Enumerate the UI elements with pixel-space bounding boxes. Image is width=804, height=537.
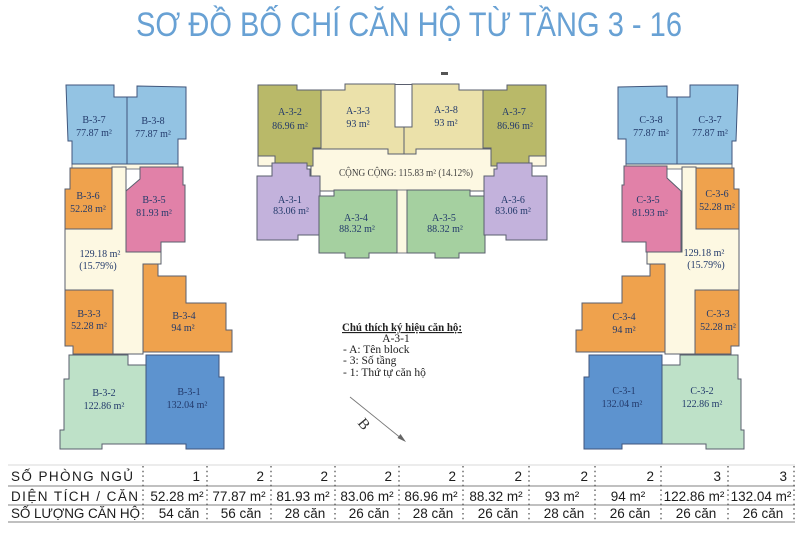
svg-text:83.06 m²: 83.06 m²: [340, 489, 394, 504]
svg-text:A-3-7: A-3-7: [502, 107, 526, 118]
svg-text:A-3-4: A-3-4: [344, 213, 368, 224]
svg-text:132.04 m²: 132.04 m²: [167, 400, 208, 411]
svg-text:81.93 m²: 81.93 m²: [632, 208, 668, 219]
svg-text:2: 2: [384, 469, 392, 484]
svg-text:CỘNG CỘNG: 115.83 m² (14.12%): CỘNG CỘNG: 115.83 m² (14.12%): [339, 167, 473, 179]
svg-text:77.87 m²: 77.87 m²: [135, 129, 171, 140]
svg-text:77.87 m²: 77.87 m²: [76, 128, 112, 139]
svg-text:B-3-8: B-3-8: [141, 116, 164, 127]
svg-text:2: 2: [580, 469, 588, 484]
svg-text:52.28 m²: 52.28 m²: [71, 321, 107, 332]
svg-text:A-3-8: A-3-8: [434, 105, 458, 116]
svg-text:B-3-3: B-3-3: [77, 309, 100, 320]
svg-text:28 căn: 28 căn: [413, 506, 454, 521]
svg-text:94 m²: 94 m²: [612, 325, 635, 336]
svg-text:2: 2: [448, 469, 456, 484]
svg-text:C-3-7: C-3-7: [698, 115, 721, 126]
svg-text:C-3-4: C-3-4: [612, 312, 635, 323]
svg-text:A-3-3: A-3-3: [346, 106, 370, 117]
svg-text:86.96 m²: 86.96 m²: [272, 121, 308, 132]
svg-text:81.93 m²: 81.93 m²: [136, 208, 172, 219]
svg-text:26 căn: 26 căn: [349, 506, 390, 521]
svg-text:54 căn: 54 căn: [159, 506, 200, 521]
svg-text:C-3-2: C-3-2: [690, 386, 713, 397]
svg-text:C-3-3: C-3-3: [706, 309, 729, 320]
svg-text:SỐ LƯỢNG CĂN HỘ: SỐ LƯỢNG CĂN HỘ: [11, 506, 140, 521]
svg-text:3: 3: [713, 469, 721, 484]
svg-text:26 căn: 26 căn: [743, 506, 784, 521]
svg-text:- 1: Thứ tự căn hộ: - 1: Thứ tự căn hộ: [343, 367, 426, 379]
svg-text:1: 1: [192, 469, 200, 484]
svg-text:52.28 m²: 52.28 m²: [699, 202, 735, 213]
svg-text:56 căn: 56 căn: [221, 506, 262, 521]
svg-text:2: 2: [320, 469, 328, 484]
svg-text:122.86 m²: 122.86 m²: [664, 489, 725, 504]
svg-text:2: 2: [256, 469, 264, 484]
svg-text:2: 2: [646, 469, 654, 484]
svg-text:(15.79%): (15.79%): [687, 260, 725, 271]
svg-text:- 3: Số tầng: - 3: Số tầng: [343, 354, 397, 367]
svg-text:132.04 m²: 132.04 m²: [602, 399, 643, 410]
svg-text:B-3-5: B-3-5: [142, 195, 165, 206]
svg-text:28 căn: 28 căn: [544, 506, 585, 521]
svg-text:B-3-1: B-3-1: [177, 387, 200, 398]
svg-text:2: 2: [514, 469, 522, 484]
svg-text:(15.79%): (15.79%): [79, 261, 117, 272]
svg-text:SỐ PHÒNG NGỦ: SỐ PHÒNG NGỦ: [11, 469, 133, 484]
svg-text:A-3-6: A-3-6: [501, 195, 525, 206]
svg-text:86.96 m²: 86.96 m²: [497, 121, 533, 132]
svg-text:88.32 m²: 88.32 m²: [469, 489, 523, 504]
svg-text:77.87 m²: 77.87 m²: [633, 128, 669, 139]
svg-text:52.28 m²: 52.28 m²: [70, 204, 106, 215]
svg-text:28 căn: 28 căn: [285, 506, 326, 521]
svg-text:81.93 m²: 81.93 m²: [276, 489, 330, 504]
svg-text:3: 3: [779, 469, 787, 484]
svg-text:A-3-5: A-3-5: [432, 213, 456, 224]
svg-text:88.32 m²: 88.32 m²: [427, 224, 463, 235]
svg-text:122.86 m²: 122.86 m²: [84, 401, 125, 412]
svg-text:DIỆN TÍCH / CĂN: DIỆN TÍCH / CĂN: [11, 489, 138, 504]
svg-text:93 m²: 93 m²: [545, 489, 580, 504]
svg-text:26 căn: 26 căn: [676, 506, 717, 521]
svg-text:B-3-7: B-3-7: [82, 115, 105, 126]
svg-text:83.06 m²: 83.06 m²: [495, 206, 531, 217]
svg-text:122.86 m²: 122.86 m²: [682, 399, 723, 410]
svg-text:B-3-6: B-3-6: [76, 191, 99, 202]
svg-text:129.18 m²: 129.18 m²: [80, 249, 121, 260]
svg-text:B-3-2: B-3-2: [92, 388, 115, 399]
svg-text:B-3-4: B-3-4: [172, 311, 195, 322]
svg-text:26 căn: 26 căn: [478, 506, 519, 521]
svg-text:52.28 m²: 52.28 m²: [700, 322, 736, 333]
svg-text:132.04 m²: 132.04 m²: [731, 489, 792, 504]
svg-text:93 m²: 93 m²: [346, 119, 369, 130]
svg-text:94 m²: 94 m²: [611, 489, 646, 504]
svg-text:94 m²: 94 m²: [171, 323, 194, 334]
svg-text:SƠ ĐỒ BỐ CHÍ CĂN HỘ TỪ TẦNG 3: SƠ ĐỒ BỐ CHÍ CĂN HỘ TỪ TẦNG 3 - 16: [136, 5, 682, 44]
svg-text:129.18 m²: 129.18 m²: [684, 248, 725, 259]
svg-text:B: B: [354, 416, 373, 434]
svg-text:88.32 m²: 88.32 m²: [339, 224, 375, 235]
svg-text:77.87 m²: 77.87 m²: [212, 489, 266, 504]
svg-text:A-3-2: A-3-2: [278, 107, 302, 118]
svg-text:C-3-1: C-3-1: [612, 386, 635, 397]
svg-text:86.96 m²: 86.96 m²: [404, 489, 458, 504]
svg-text:77.87 m²: 77.87 m²: [692, 128, 728, 139]
svg-text:C-3-6: C-3-6: [705, 189, 728, 200]
svg-text:93 m²: 93 m²: [434, 118, 457, 129]
svg-text:C-3-8: C-3-8: [639, 115, 662, 126]
svg-text:C-3-5: C-3-5: [636, 195, 659, 206]
svg-text:52.28 m²: 52.28 m²: [150, 489, 204, 504]
svg-text:26 căn: 26 căn: [610, 506, 651, 521]
svg-text:83.06 m²: 83.06 m²: [273, 206, 309, 217]
svg-text:A-3-1: A-3-1: [278, 195, 302, 206]
